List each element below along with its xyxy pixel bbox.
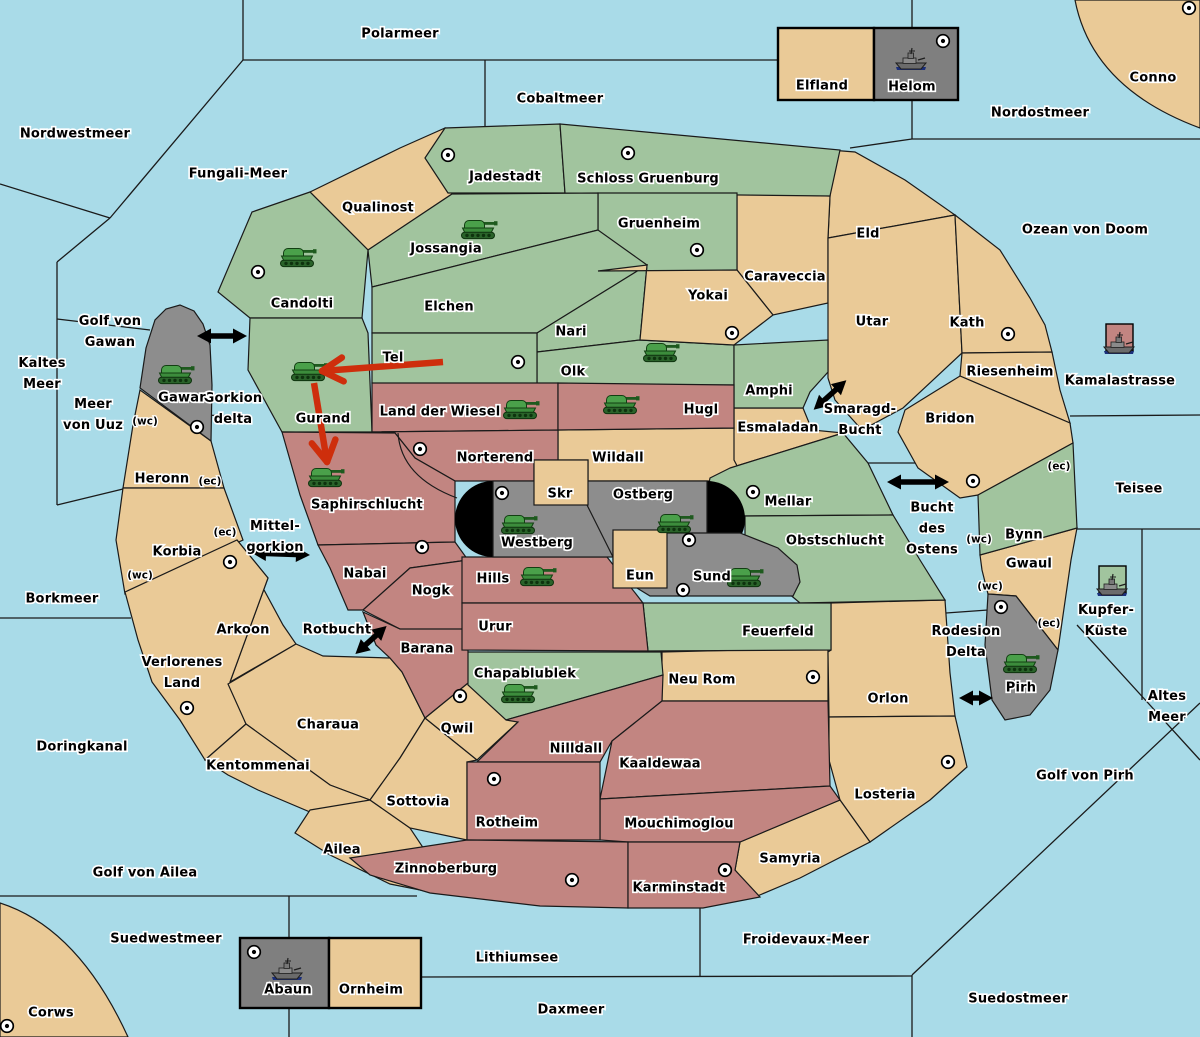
city-dot bbox=[252, 266, 265, 279]
city-dot bbox=[414, 443, 427, 456]
region-label-kath: Kath bbox=[949, 316, 984, 331]
region-label-candolti: Candolti bbox=[271, 297, 334, 312]
city-dot bbox=[691, 244, 704, 257]
region-label-elfland: Elfland bbox=[796, 79, 848, 94]
coast-tag: (ec) bbox=[199, 476, 222, 488]
sea-label-froidevaux-meer: Froidevaux-Meer bbox=[743, 933, 870, 948]
coast-tag: (ec) bbox=[214, 527, 237, 539]
region-label-caraveccia: Caraveccia bbox=[744, 270, 825, 285]
region-label-esmaladan: Esmaladan bbox=[737, 421, 818, 436]
region-label-qualinost: Qualinost bbox=[342, 201, 414, 216]
region-label-abaun: Abaun bbox=[264, 983, 312, 998]
region-label-gwaul: Gwaul bbox=[1006, 557, 1052, 572]
region-label-qwil: Qwil bbox=[441, 722, 474, 737]
region-label-utar: Utar bbox=[856, 315, 889, 330]
sea-label-kamalastrasse: Kamalastrasse bbox=[1065, 374, 1175, 389]
city-dot bbox=[416, 541, 429, 554]
region-label-nilldall: Nilldall bbox=[550, 742, 603, 757]
region-label-gurand: Gurand bbox=[296, 412, 351, 427]
region-label-ostberg: Ostberg bbox=[613, 488, 673, 503]
sea-label-fungali-meer: Fungali-Meer bbox=[189, 167, 288, 182]
city-dot bbox=[1, 1020, 14, 1033]
city-dot bbox=[191, 421, 204, 434]
tank-icon-hills[interactable] bbox=[521, 568, 557, 586]
city-dot bbox=[248, 946, 261, 959]
sea-label-rotbucht: Rotbucht bbox=[303, 623, 372, 638]
map-canvas: PolarmeerNordwestmeerCobaltmeerNordostme… bbox=[0, 0, 1200, 1037]
region-label-eun: Eun bbox=[626, 569, 654, 584]
region-label-charaua: Charaua bbox=[297, 718, 359, 733]
sea-label-suedwestmeer: Suedwestmeer bbox=[110, 932, 222, 947]
tank-icon-ostberg[interactable] bbox=[658, 515, 694, 533]
region-label-westberg: Westberg bbox=[501, 536, 573, 551]
region-label-jossangia: Jossangia bbox=[409, 242, 482, 257]
region-label-land-der-wiesel: Land der Wiesel bbox=[380, 405, 501, 420]
city-dot bbox=[967, 475, 980, 488]
tank-icon-pirh[interactable] bbox=[1004, 655, 1040, 673]
region-label-eld: Eld bbox=[856, 227, 879, 242]
tank-icon-candolti[interactable] bbox=[281, 249, 317, 267]
region-label-riesenheim: Riesenheim bbox=[966, 365, 1053, 380]
city-dot bbox=[683, 534, 696, 547]
region-label-corws: Corws bbox=[28, 1006, 74, 1021]
city-dot bbox=[622, 147, 635, 160]
region-label-obstschlucht: Obstschlucht bbox=[786, 534, 884, 549]
coast-tag: (ec) bbox=[1038, 618, 1061, 630]
coast-tag: (ec) bbox=[1048, 461, 1071, 473]
tank-icon-jossangia[interactable] bbox=[462, 221, 498, 239]
city-dot bbox=[496, 487, 509, 500]
sea-label-golf-von-ailea: Golf von Ailea bbox=[93, 866, 198, 881]
region-label-orlon: Orlon bbox=[867, 692, 908, 707]
tank-icon-hugl[interactable] bbox=[604, 396, 640, 414]
sea-label-polarmeer: Polarmeer bbox=[361, 27, 439, 42]
region-label-losteria: Losteria bbox=[854, 788, 915, 803]
region-label-kaaldewaa: Kaaldewaa bbox=[619, 757, 701, 772]
sea-label-suedostmeer: Suedostmeer bbox=[968, 992, 1068, 1007]
sea-label-borkmeer: Borkmeer bbox=[25, 592, 98, 607]
tank-icon-sund[interactable] bbox=[728, 569, 764, 587]
city-dot bbox=[224, 556, 237, 569]
tank-icon-westberg[interactable] bbox=[502, 516, 538, 534]
region-label-heronn: Heronn bbox=[135, 472, 190, 487]
region-label-hills: Hills bbox=[477, 572, 510, 587]
region-label-kentommenai: Kentommenai bbox=[206, 759, 310, 774]
region-label-saphirschlucht: Saphirschlucht bbox=[311, 498, 423, 513]
sea-label-nordwestmeer: Nordwestmeer bbox=[20, 127, 131, 142]
region-label-conno: Conno bbox=[1130, 71, 1177, 86]
city-dot bbox=[937, 35, 950, 48]
coast-tag: (wc) bbox=[977, 581, 1003, 593]
region-label-bynn: Bynn bbox=[1005, 528, 1043, 543]
region-label-mouchimoglou: Mouchimoglou bbox=[624, 817, 733, 832]
sea-label-doringkanal: Doringkanal bbox=[36, 740, 127, 755]
tank-icon-chapablublek[interactable] bbox=[502, 685, 538, 703]
region-label-rotheim: Rotheim bbox=[476, 816, 539, 831]
region-label-nabai: Nabai bbox=[343, 567, 386, 582]
region-label-neu-rom: Neu Rom bbox=[668, 673, 735, 688]
sea-label-cobaltmeer: Cobaltmeer bbox=[517, 92, 604, 107]
region-label-tel: Tel bbox=[382, 351, 403, 366]
region-label-pirh: Pirh bbox=[1006, 681, 1036, 696]
region-label-korbia: Korbia bbox=[153, 545, 202, 560]
region-label-ailea: Ailea bbox=[323, 843, 361, 858]
city-dot bbox=[719, 864, 732, 877]
city-dot bbox=[747, 486, 760, 499]
coast-tag: (wc) bbox=[966, 534, 992, 546]
tank-icon-olk[interactable] bbox=[644, 344, 680, 362]
region-label-nogk: Nogk bbox=[412, 584, 451, 599]
sea-label-golf-von-pirh: Golf von Pirh bbox=[1036, 769, 1134, 784]
region-label-mellar: Mellar bbox=[764, 495, 811, 510]
city-dot bbox=[454, 690, 467, 703]
city-dot bbox=[807, 671, 820, 684]
region-label-ornheim: Ornheim bbox=[339, 983, 403, 998]
region-label-helom: Helom bbox=[888, 80, 936, 95]
region-label-samyria: Samyria bbox=[759, 852, 820, 867]
region-label-nari: Nari bbox=[555, 325, 586, 340]
region-label-gruenheim: Gruenheim bbox=[618, 217, 700, 232]
region-label-chapablublek: Chapablublek bbox=[474, 667, 576, 682]
region-label-gawar: Gawar bbox=[158, 391, 206, 406]
tank-icon-land-der-wiesel[interactable] bbox=[504, 401, 540, 419]
region-label-norterend: Norterend bbox=[457, 451, 534, 466]
city-dot bbox=[181, 702, 194, 715]
region-label-hugl: Hugl bbox=[684, 403, 719, 418]
sea-label-ozean-von-doom: Ozean von Doom bbox=[1022, 223, 1148, 238]
city-dot bbox=[942, 756, 955, 769]
city-dot bbox=[566, 874, 579, 887]
region-label-bridon: Bridon bbox=[925, 412, 974, 427]
city-dot bbox=[442, 149, 455, 162]
city-dot bbox=[726, 327, 739, 340]
region-label-arkoon: Arkoon bbox=[216, 623, 269, 638]
sea-label-nordostmeer: Nordostmeer bbox=[991, 106, 1090, 121]
tank-icon-gawar[interactable] bbox=[159, 366, 195, 384]
region-label-urur: Urur bbox=[478, 620, 512, 635]
sea-label-teisee: Teisee bbox=[1116, 482, 1163, 497]
strategy-game-map: PolarmeerNordwestmeerCobaltmeerNordostme… bbox=[0, 0, 1200, 1037]
region-label-karminstadt: Karminstadt bbox=[633, 881, 726, 896]
sea-label-lithiumsee: Lithiumsee bbox=[476, 951, 559, 966]
region-label-barana: Barana bbox=[400, 642, 453, 657]
city-dot bbox=[512, 356, 525, 369]
region-label-yokai: Yokai bbox=[687, 289, 728, 304]
region-label-olk: Olk bbox=[561, 365, 586, 380]
city-dot bbox=[677, 584, 690, 597]
region-label-elchen: Elchen bbox=[424, 300, 474, 315]
city-dot bbox=[488, 773, 501, 786]
region-label-skr: Skr bbox=[547, 487, 572, 502]
region-label-wildall: Wildall bbox=[592, 451, 644, 466]
region-label-jadestadt: Jadestadt bbox=[468, 170, 541, 185]
city-dot bbox=[1183, 2, 1196, 15]
region-label-zinnoberburg: Zinnoberburg bbox=[395, 862, 498, 877]
city-dot bbox=[1002, 328, 1015, 341]
region-label-amphi: Amphi bbox=[745, 384, 793, 399]
tank-icon-saphirschlucht[interactable] bbox=[309, 469, 345, 487]
city-dot bbox=[995, 601, 1008, 614]
port-box-ornheim[interactable] bbox=[329, 938, 421, 1008]
coast-tag: (wc) bbox=[132, 416, 158, 428]
coast-tag: (wc) bbox=[127, 570, 153, 582]
sea-label-daxmeer: Daxmeer bbox=[538, 1003, 605, 1018]
region-label-sottovia: Sottovia bbox=[387, 795, 450, 810]
region-label-sund: Sund bbox=[693, 570, 731, 585]
region-label-schloss-gruenburg: Schloss Gruenburg bbox=[577, 172, 719, 187]
region-label-feuerfeld: Feuerfeld bbox=[742, 625, 814, 640]
